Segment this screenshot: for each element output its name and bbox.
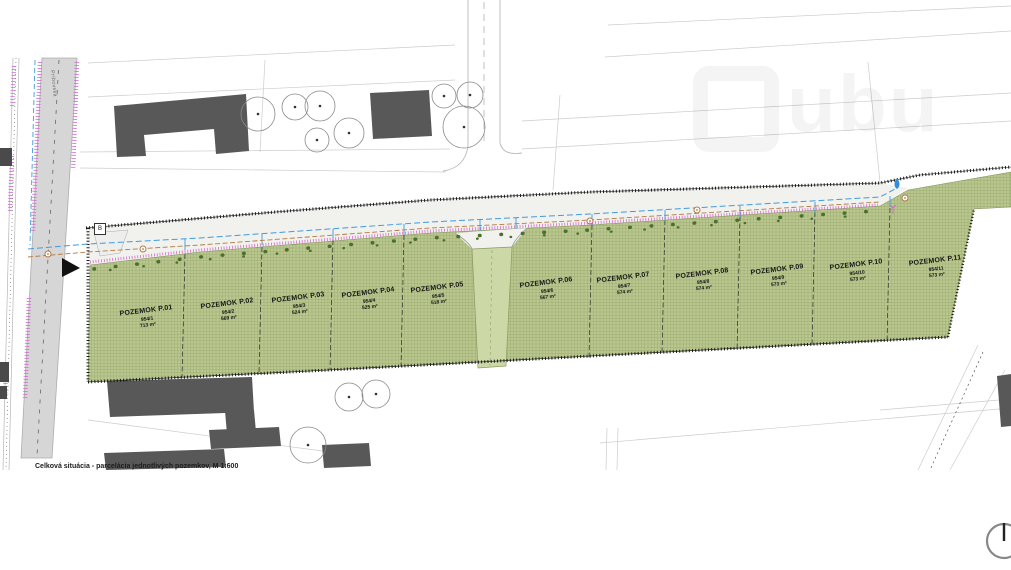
left-street-surface [21, 58, 77, 458]
building [322, 443, 371, 468]
flow-direction-arrow-icon [62, 258, 80, 277]
building [114, 94, 249, 157]
north-arrow-icon [987, 523, 1011, 558]
site-plan-canvas: ubu Príbovská B POZEMOK P.01 954/1 713 m… [0, 0, 1011, 570]
north-access-road [443, 0, 522, 171]
watermark: ubu [693, 66, 940, 152]
connection-box-marker: B [94, 223, 106, 235]
left-boundary-lines [3, 58, 19, 470]
building [997, 374, 1011, 427]
watermark-text: ubu [787, 66, 940, 142]
building [209, 427, 281, 449]
drawing-caption: Celková situácia - parcelácia jednotlivý… [35, 463, 238, 470]
left-boundary-dotted [6, 58, 16, 470]
building [370, 90, 432, 139]
house-logo-icon [693, 66, 779, 152]
driveway [472, 247, 512, 368]
